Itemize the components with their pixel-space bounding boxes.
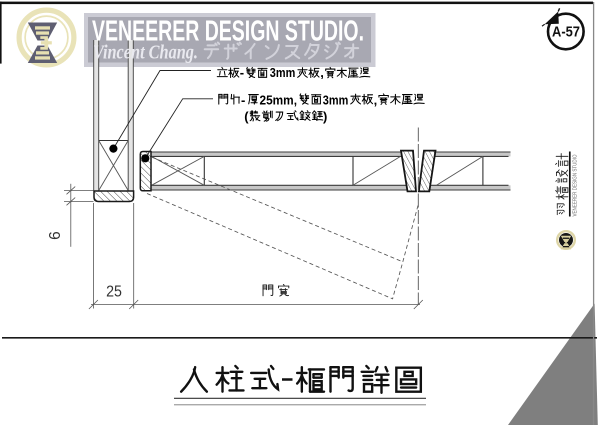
svg-text:): ): [323, 109, 327, 124]
svg-text:-: -: [240, 65, 244, 80]
svg-text:A-57: A-57: [552, 25, 580, 41]
svg-text:25: 25: [106, 284, 122, 301]
svg-text:25mm,: 25mm,: [260, 92, 298, 107]
svg-text:-: -: [241, 92, 245, 107]
svg-text:3mm: 3mm: [270, 65, 296, 80]
svg-text:VENEERER DESIGN STUDIO: VENEERER DESIGN STUDIO: [573, 154, 579, 217]
svg-text:(: (: [244, 109, 249, 124]
svg-text:Vincent Chang.: Vincent Chang.: [93, 42, 198, 64]
svg-text:6: 6: [47, 231, 64, 240]
svg-text:,: ,: [320, 65, 324, 80]
svg-text:,: ,: [374, 92, 378, 107]
svg-text:3mm: 3mm: [323, 92, 349, 107]
